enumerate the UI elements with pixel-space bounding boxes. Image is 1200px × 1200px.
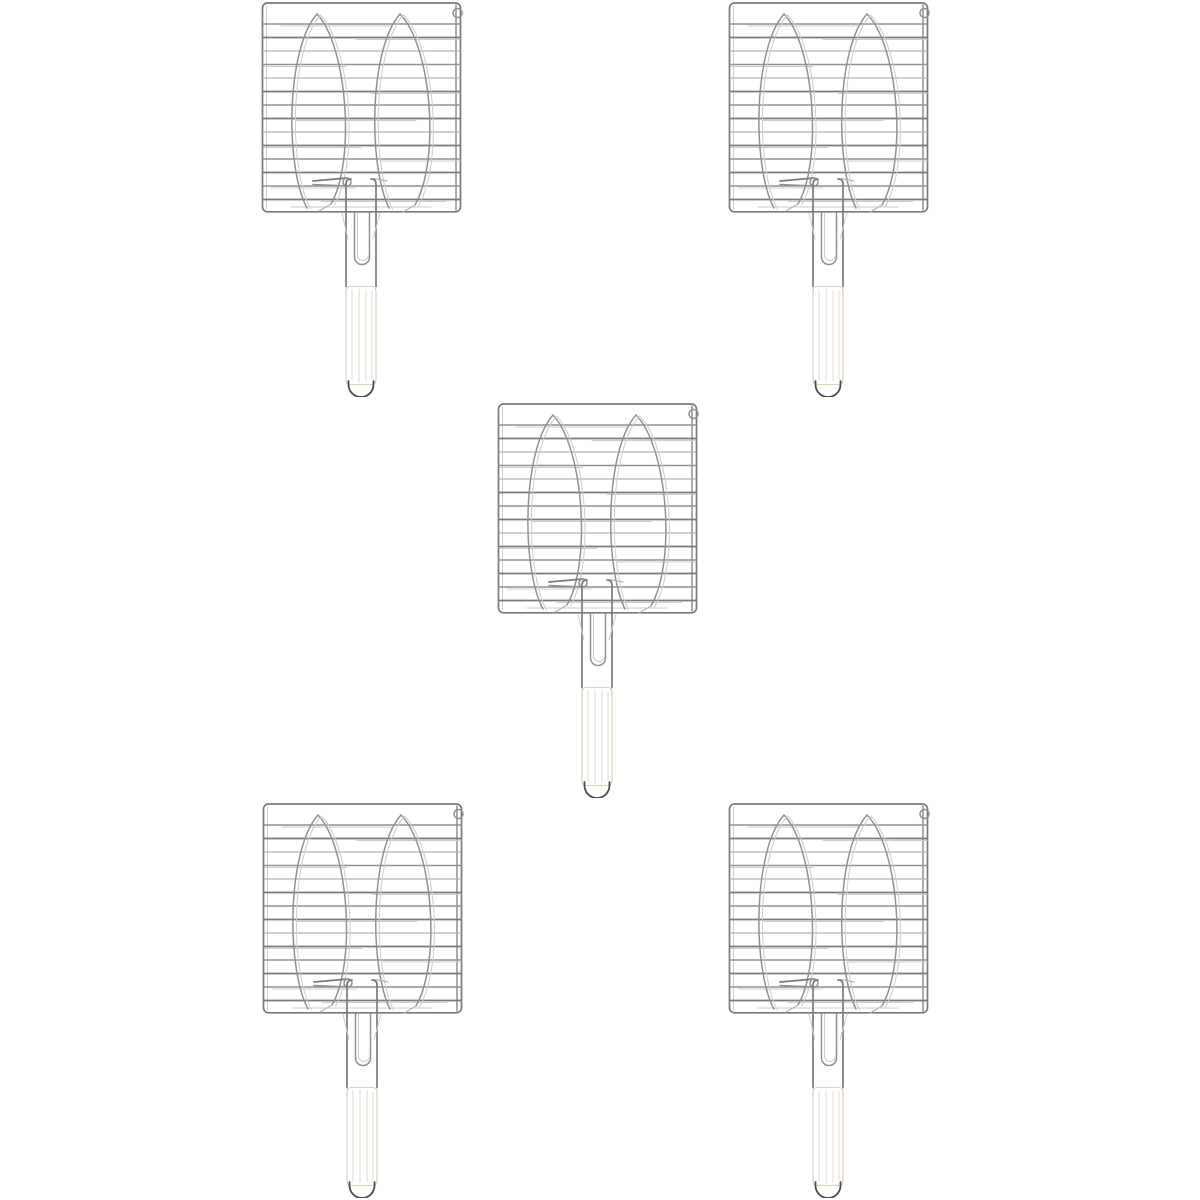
grill-basket-drawing (728, 1, 930, 397)
wire-tip-loop (816, 1182, 841, 1198)
wire-neck (578, 580, 616, 688)
fish-outline-right (611, 415, 670, 613)
wooden-handle (582, 688, 612, 786)
wire-tip-loop (816, 381, 841, 397)
handle-rivet-dot (596, 743, 599, 746)
grill-grid-wires (731, 825, 928, 1003)
grill-basket-drawing (261, 1, 463, 397)
product-photo-stage (0, 0, 1200, 1200)
inner-wire-loop (822, 213, 837, 265)
wire-neck (342, 179, 380, 287)
wooden-handle (813, 1088, 843, 1186)
inner-wire-loop (591, 614, 606, 666)
fish-outline-right (842, 14, 901, 212)
grill-basket-top-right (728, 1, 930, 397)
grill-grid-wires (265, 825, 462, 1003)
grill-basket-center (497, 402, 699, 798)
grill-basket-top-left (261, 1, 463, 397)
grill-grid-wires (500, 425, 697, 603)
fish-outline-left (759, 815, 816, 1012)
grill-basket-drawing (728, 802, 930, 1198)
handle-rivet-dot (360, 342, 363, 345)
inner-wire-loop (822, 1014, 837, 1066)
wire-tip-loop (350, 1182, 375, 1198)
fish-outline-right (842, 815, 901, 1013)
wire-neck (343, 980, 381, 1088)
wire-tip-loop (349, 381, 374, 397)
fish-outline-left (528, 415, 585, 612)
fish-outline-left (292, 14, 349, 211)
wire-neck (809, 179, 847, 287)
wire-neck (809, 980, 847, 1088)
grill-basket-drawing (262, 802, 464, 1198)
fish-outline-left (293, 815, 350, 1012)
grill-grid-wires (264, 24, 461, 202)
wooden-handle (347, 1088, 377, 1186)
fish-outline-right (376, 815, 435, 1013)
grill-basket-bottom-right (728, 802, 930, 1198)
grill-grid-wires (731, 24, 928, 202)
inner-wire-loop (355, 213, 370, 265)
grill-basket-bottom-left (262, 802, 464, 1198)
grill-basket-drawing (497, 402, 699, 798)
handle-rivet-dot (361, 1143, 364, 1146)
inner-wire-loop (356, 1014, 371, 1066)
wire-tip-loop (585, 782, 610, 798)
fish-outline-left (759, 14, 816, 211)
fish-outline-right (375, 14, 434, 212)
handle-rivet-dot (827, 1143, 830, 1146)
wooden-handle (813, 287, 843, 385)
wooden-handle (346, 287, 376, 385)
handle-rivet-dot (827, 342, 830, 345)
